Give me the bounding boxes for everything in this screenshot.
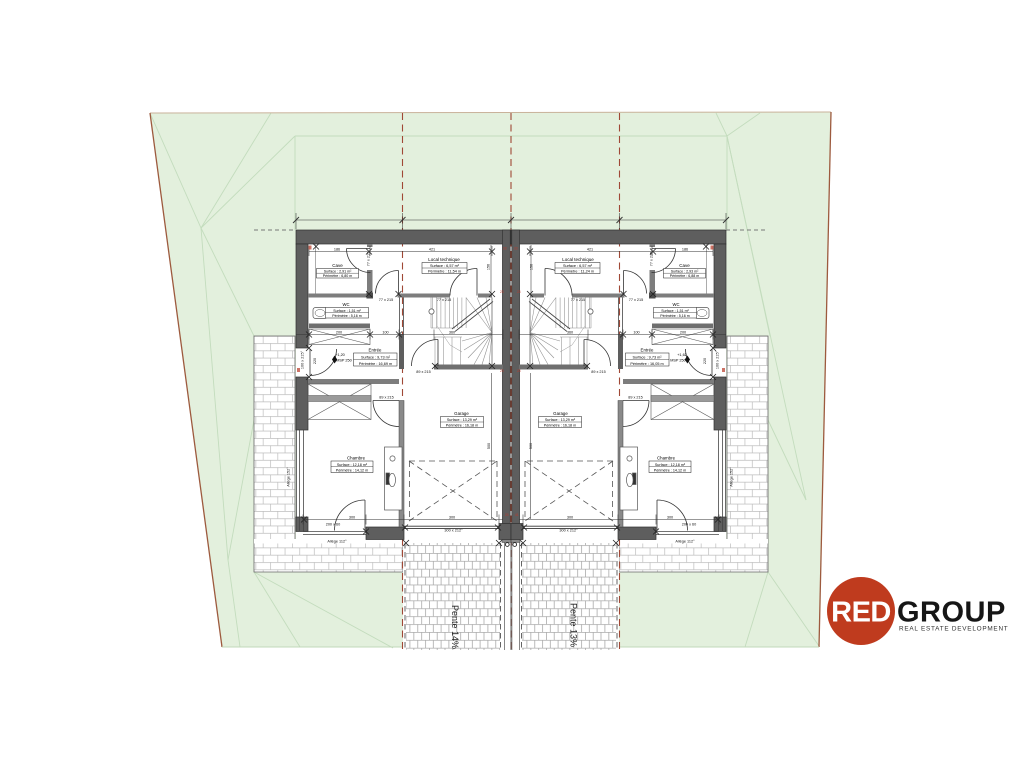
svg-text:89 x 215: 89 x 215 xyxy=(379,396,394,400)
svg-text:Entrée: Entrée xyxy=(641,348,654,353)
svg-text:Surface : 13,29 m²: Surface : 13,29 m² xyxy=(545,418,576,422)
svg-text:421: 421 xyxy=(429,247,435,251)
svg-text:Périmètre : 11,24 m: Périmètre : 11,24 m xyxy=(561,269,594,273)
svg-text:300: 300 xyxy=(349,515,355,519)
svg-text:Périmètre : 5,16 m: Périmètre : 5,16 m xyxy=(660,314,690,318)
svg-text:23: 23 xyxy=(500,369,504,373)
svg-text:360: 360 xyxy=(567,330,573,334)
svg-text:+1,20: +1,20 xyxy=(335,353,345,357)
svg-text:156: 156 xyxy=(487,264,491,270)
svg-text:421: 421 xyxy=(587,247,593,251)
svg-text:23: 23 xyxy=(517,369,521,373)
svg-text:186: 186 xyxy=(334,247,340,251)
svg-text:Périmètre : 6,80 m: Périmètre : 6,80 m xyxy=(323,274,353,278)
svg-text:Allège 112°: Allège 112° xyxy=(327,540,347,544)
svg-text:300 x 212°: 300 x 212° xyxy=(559,529,578,533)
svg-text:500: 500 xyxy=(487,443,491,449)
svg-text:GROUP: GROUP xyxy=(897,597,1006,629)
svg-text:Périmètre : 11,54 m: Périmètre : 11,54 m xyxy=(428,269,461,273)
svg-text:Périmètre : 14,12 m: Périmètre : 14,12 m xyxy=(654,468,686,472)
svg-text:300 x 212°: 300 x 212° xyxy=(444,529,463,533)
svg-text:Surface : 2,93 m²: Surface : 2,93 m² xyxy=(671,269,699,273)
svg-text:200: 200 xyxy=(336,330,342,334)
svg-text:WC: WC xyxy=(673,302,680,307)
svg-text:Périmètre : 16,69 m: Périmètre : 16,69 m xyxy=(359,362,392,366)
svg-text:41: 41 xyxy=(515,513,519,517)
svg-text:300: 300 xyxy=(667,515,673,519)
svg-text:77 x 215: 77 x 215 xyxy=(650,252,654,267)
svg-text:Surface : 6,57 m²: Surface : 6,57 m² xyxy=(430,264,460,268)
svg-text:Cave: Cave xyxy=(332,263,343,268)
svg-text:Pente 13%: Pente 13% xyxy=(569,603,579,647)
svg-text:Cave: Cave xyxy=(679,263,690,268)
svg-text:Garage: Garage xyxy=(553,411,568,416)
svg-text:Local technique: Local technique xyxy=(428,257,460,262)
svg-text:500: 500 xyxy=(529,443,533,449)
svg-text:20: 20 xyxy=(505,513,509,517)
svg-text:RED: RED xyxy=(831,597,891,629)
svg-text:100 x 215°: 100 x 215° xyxy=(716,350,720,369)
svg-text:23: 23 xyxy=(514,247,518,251)
svg-text:Surface : 13,29 m²: Surface : 13,29 m² xyxy=(447,418,478,422)
svg-text:Chambre: Chambre xyxy=(347,456,366,461)
svg-text:REAL ESTATE DEVELOPMENT: REAL ESTATE DEVELOPMENT xyxy=(899,626,1008,633)
svg-text:200: 200 xyxy=(680,330,686,334)
svg-text:Surface : 1,51 m²: Surface : 1,51 m² xyxy=(333,309,361,313)
svg-text:23: 23 xyxy=(503,247,507,251)
svg-text:Périmètre : 5,16 m: Périmètre : 5,16 m xyxy=(332,314,362,318)
svg-text:Surface : 2,91 m²: Surface : 2,91 m² xyxy=(324,269,352,273)
svg-text:Surface : 1,51 m²: Surface : 1,51 m² xyxy=(661,309,689,313)
svg-text:Allège 112°: Allège 112° xyxy=(675,540,695,544)
svg-text:77 x 215: 77 x 215 xyxy=(379,298,394,302)
svg-text:Périmètre : 14,12 m: Périmètre : 14,12 m xyxy=(336,468,368,472)
svg-text:Surface : 9,73 m²: Surface : 9,73 m² xyxy=(632,355,662,359)
svg-text:WC: WC xyxy=(343,302,350,307)
svg-text:Chambre: Chambre xyxy=(657,456,676,461)
svg-text:100: 100 xyxy=(633,330,639,334)
svg-text:89 x 215: 89 x 215 xyxy=(628,396,643,400)
svg-text:Local technique: Local technique xyxy=(562,257,594,262)
svg-text:300: 300 xyxy=(449,515,455,519)
svg-text:Garage: Garage xyxy=(454,411,469,416)
svg-text:Allège 152°: Allège 152° xyxy=(287,467,291,487)
svg-text:77 x 215: 77 x 215 xyxy=(367,252,371,267)
svg-text:MSP 250: MSP 250 xyxy=(336,359,352,363)
svg-text:Surface : 9,73 m²: Surface : 9,73 m² xyxy=(361,355,391,359)
svg-text:Périmètre : 16,18 m: Périmètre : 16,18 m xyxy=(544,424,576,428)
svg-text:Surface : 12,18 m²: Surface : 12,18 m² xyxy=(655,463,686,467)
svg-text:156: 156 xyxy=(530,264,534,270)
svg-text:Pente 14%: Pente 14% xyxy=(450,605,460,649)
svg-text:89 x 215: 89 x 215 xyxy=(591,370,606,374)
svg-text:220: 220 xyxy=(313,358,317,364)
svg-text:Surface : 12,18 m²: Surface : 12,18 m² xyxy=(337,463,368,467)
svg-text:100: 100 xyxy=(382,330,388,334)
svg-text:100 x 215°: 100 x 215° xyxy=(301,350,305,369)
svg-text:MSP 250: MSP 250 xyxy=(670,359,686,363)
svg-text:23: 23 xyxy=(500,290,504,294)
svg-text:77 x 215: 77 x 215 xyxy=(571,298,586,302)
svg-text:Périmètre : 6,88 m: Périmètre : 6,88 m xyxy=(670,274,700,278)
svg-text:186: 186 xyxy=(682,247,688,251)
svg-text:Périmètre : 16,05 m: Périmètre : 16,05 m xyxy=(630,362,663,366)
svg-text:Périmètre : 16,18 m: Périmètre : 16,18 m xyxy=(446,424,478,428)
svg-text:77 x 215: 77 x 215 xyxy=(629,298,644,302)
svg-text:300: 300 xyxy=(567,515,573,519)
svg-text:220: 220 xyxy=(703,358,707,364)
svg-text:77 x 215: 77 x 215 xyxy=(437,298,452,302)
svg-text:360: 360 xyxy=(449,330,455,334)
svg-text:89 x 215: 89 x 215 xyxy=(416,370,431,374)
svg-text:200 x 60: 200 x 60 xyxy=(326,523,341,527)
svg-text:Allège 152°: Allège 152° xyxy=(730,467,734,487)
svg-text:200 x 60: 200 x 60 xyxy=(682,523,697,527)
svg-text:+1,62: +1,62 xyxy=(677,353,687,357)
svg-text:Surface : 6,57 m²: Surface : 6,57 m² xyxy=(563,264,593,268)
svg-text:Entrée: Entrée xyxy=(369,348,382,353)
svg-text:23: 23 xyxy=(517,290,521,294)
